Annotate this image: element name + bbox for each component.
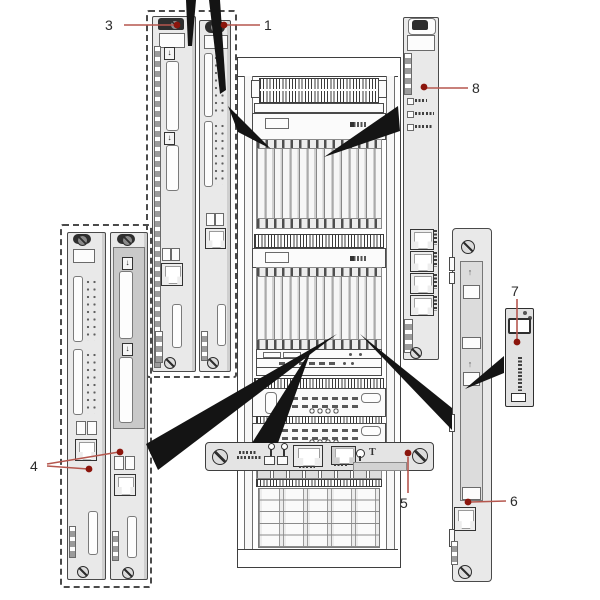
down-arrow-icon: ↓ bbox=[164, 132, 175, 145]
rj45-port bbox=[410, 295, 434, 316]
bottom-latch bbox=[451, 541, 458, 565]
rj45-plug-notch bbox=[414, 276, 432, 293]
callout-label-3: 3 bbox=[105, 17, 113, 33]
silkscreen-text bbox=[237, 456, 261, 459]
rj45-plug-notch bbox=[414, 298, 432, 315]
connector-square bbox=[87, 421, 97, 435]
captive-screw-icon bbox=[461, 240, 475, 254]
connector-square bbox=[76, 421, 86, 435]
rack-left-rail bbox=[244, 76, 253, 549]
callout-label-7: 7 bbox=[511, 283, 519, 299]
screw-icon bbox=[343, 362, 346, 365]
up-arrow-icon: ↑ bbox=[465, 359, 475, 371]
channel-divider-tab bbox=[462, 337, 481, 349]
rj45-port bbox=[410, 251, 434, 272]
board-label-window bbox=[204, 35, 228, 49]
fan-tray-bracket-right bbox=[378, 80, 387, 98]
rj45-port bbox=[454, 507, 476, 531]
connector-square bbox=[206, 213, 215, 226]
vendor-logo-icon bbox=[350, 256, 366, 261]
rj45-plug-notch bbox=[79, 442, 95, 460]
board-recess-slot bbox=[73, 349, 83, 415]
edge-bump bbox=[449, 414, 455, 432]
indicator-led bbox=[407, 98, 414, 105]
probe-tip-icon bbox=[281, 443, 288, 450]
rj45-plug-notch bbox=[414, 232, 432, 249]
captive-screw-icon bbox=[212, 449, 228, 465]
t-symbol-icon: T bbox=[369, 448, 379, 458]
equipment-rack bbox=[237, 57, 401, 568]
board-recess-slot bbox=[172, 304, 182, 348]
rj45-plug-notch bbox=[335, 448, 354, 464]
ground-symbol-stem bbox=[359, 456, 361, 461]
board-recess-slot bbox=[166, 61, 179, 131]
ejector-handle bbox=[412, 20, 428, 30]
board-step bbox=[353, 462, 407, 471]
unit-vent-dashes bbox=[279, 362, 339, 365]
connector-square bbox=[125, 456, 135, 470]
board-recess-slot bbox=[166, 145, 179, 191]
rj45-plug-notch bbox=[458, 510, 474, 530]
subrack-2-board-slots bbox=[256, 276, 382, 341]
rj45-plug-notch bbox=[298, 448, 320, 466]
callout-label-8: 8 bbox=[472, 80, 480, 96]
rj45-plug-notch bbox=[165, 266, 181, 285]
connector-hole-grid bbox=[213, 123, 226, 185]
vendor-logo-icon bbox=[350, 122, 366, 127]
subrack-1-board-slots bbox=[256, 148, 382, 220]
captive-screw-icon bbox=[458, 565, 472, 579]
callout-label-5: 5 bbox=[400, 495, 408, 511]
rj45-port bbox=[205, 228, 226, 249]
power-hatch-row bbox=[256, 479, 382, 487]
board-recess-slot bbox=[88, 511, 98, 555]
down-arrow-icon: ↓ bbox=[122, 257, 133, 270]
panel-2-label-window bbox=[265, 252, 289, 263]
board-label-window bbox=[159, 33, 185, 48]
screw-icon bbox=[349, 353, 352, 356]
indicator-label-text bbox=[415, 112, 434, 115]
bottom-latch bbox=[69, 526, 76, 558]
port-label-text bbox=[434, 230, 437, 245]
captive-screw-icon bbox=[410, 347, 422, 359]
indicator-label-text bbox=[415, 99, 427, 102]
cable-tray-1 bbox=[254, 234, 384, 248]
captive-screw-icon bbox=[210, 22, 221, 33]
connector-hole-grid bbox=[213, 55, 226, 115]
fan-tray-midline bbox=[260, 89, 376, 91]
board-recess-slot bbox=[204, 53, 213, 117]
edge-latch-strip bbox=[154, 46, 161, 368]
power-distribution-grid bbox=[258, 488, 380, 548]
screw-icon bbox=[523, 311, 527, 315]
silkscreen-text bbox=[239, 451, 257, 454]
board-8 bbox=[403, 17, 439, 360]
ddf-bracket-left bbox=[265, 392, 277, 414]
callout-label-1: 1 bbox=[264, 17, 272, 33]
rack-top-cap bbox=[238, 58, 398, 77]
connector-square bbox=[171, 248, 180, 261]
board-recess-slot bbox=[73, 276, 83, 342]
board-label-window bbox=[407, 35, 435, 51]
ddf-connector-row bbox=[282, 397, 358, 400]
port-label-text bbox=[434, 296, 437, 311]
indicator-led bbox=[407, 124, 414, 131]
port-label-text bbox=[299, 466, 315, 468]
board-5: T bbox=[205, 442, 434, 471]
probe-base bbox=[277, 456, 288, 465]
diagram-canvas: ↓ ↓ bbox=[0, 0, 600, 600]
ddf-connector-row bbox=[282, 429, 358, 432]
board-recess-slot bbox=[119, 271, 133, 339]
bottom-latch bbox=[112, 531, 119, 561]
board-label-window bbox=[73, 249, 95, 263]
connector-square bbox=[114, 456, 124, 470]
port-label-text bbox=[434, 252, 437, 267]
captive-screw-icon bbox=[122, 567, 134, 579]
rj45-plug-notch bbox=[118, 477, 134, 495]
ground-symbol-icon bbox=[356, 449, 365, 458]
rj45-port bbox=[161, 263, 183, 286]
thin-unit-row-3 bbox=[256, 367, 382, 376]
board-4-left bbox=[67, 232, 106, 580]
bottom-latch bbox=[155, 331, 163, 363]
probe-tip-icon bbox=[268, 443, 275, 450]
module-slot bbox=[508, 318, 531, 334]
panel-1-label-window bbox=[265, 118, 289, 129]
down-arrow-icon: ↓ bbox=[122, 343, 133, 356]
fan-tray-lower-bar bbox=[254, 103, 384, 113]
rj45-port bbox=[114, 474, 136, 496]
board-recess-slot bbox=[127, 516, 137, 558]
board-recess-slot bbox=[217, 304, 226, 346]
screw-icon bbox=[351, 362, 354, 365]
fan-tray-bracket-left bbox=[251, 80, 260, 98]
module-label-text bbox=[518, 357, 522, 391]
indicator-label-text bbox=[415, 125, 432, 128]
down-arrow-icon: ↓ bbox=[164, 47, 175, 60]
edge-latch-strip bbox=[404, 53, 412, 95]
subrack-1-bottom-connectors bbox=[256, 218, 382, 229]
indicator-led bbox=[407, 111, 414, 118]
captive-screw-icon bbox=[412, 448, 428, 464]
ddf-coax-ports bbox=[308, 407, 340, 415]
board-1 bbox=[199, 20, 231, 372]
channel-window bbox=[463, 285, 480, 299]
up-arrow-icon: ↑ bbox=[465, 267, 475, 279]
rj45-port bbox=[293, 445, 323, 467]
port-label-text bbox=[334, 464, 348, 466]
board-recess-slot bbox=[204, 121, 213, 187]
rj45-port bbox=[75, 439, 97, 461]
edge-bump bbox=[449, 257, 455, 271]
ddf-bracket-right bbox=[361, 393, 381, 403]
module-7 bbox=[505, 308, 534, 407]
rack-plinth bbox=[238, 549, 398, 568]
board-6: ↑ ↑ bbox=[452, 228, 492, 582]
captive-screw-icon bbox=[170, 20, 180, 30]
module-slot bbox=[511, 393, 526, 402]
ddf-panel-1 bbox=[252, 388, 386, 417]
channel-window bbox=[463, 372, 480, 386]
probe-base bbox=[264, 456, 275, 465]
board-4-right: ↓ ↓ bbox=[110, 232, 148, 580]
captive-screw-icon bbox=[122, 235, 133, 246]
board-3: ↓ ↓ bbox=[152, 16, 196, 372]
captive-screw-icon bbox=[164, 357, 176, 369]
rack-right-rail bbox=[386, 76, 395, 549]
rj45-port bbox=[410, 229, 434, 250]
connector-hole-grid bbox=[85, 279, 98, 341]
port-label-text bbox=[434, 274, 437, 289]
board-recess-slot bbox=[119, 357, 133, 423]
edge-bump bbox=[449, 272, 455, 284]
connector-square bbox=[162, 248, 171, 261]
captive-screw-icon bbox=[77, 235, 88, 246]
channel-end-tab bbox=[462, 487, 481, 500]
connector-square bbox=[215, 213, 224, 226]
rj45-plug-notch bbox=[414, 254, 432, 271]
rj45-plug-notch bbox=[209, 231, 225, 248]
callout-label-6: 6 bbox=[510, 493, 518, 509]
captive-screw-icon bbox=[77, 566, 89, 578]
callout-label-4: 4 bbox=[30, 458, 38, 474]
connector-hole-grid bbox=[85, 352, 98, 414]
screw-icon bbox=[359, 353, 362, 356]
ddf-bracket-right bbox=[361, 426, 381, 436]
captive-screw-icon bbox=[207, 357, 219, 369]
bottom-latch bbox=[201, 331, 208, 361]
rj45-port bbox=[410, 273, 434, 294]
